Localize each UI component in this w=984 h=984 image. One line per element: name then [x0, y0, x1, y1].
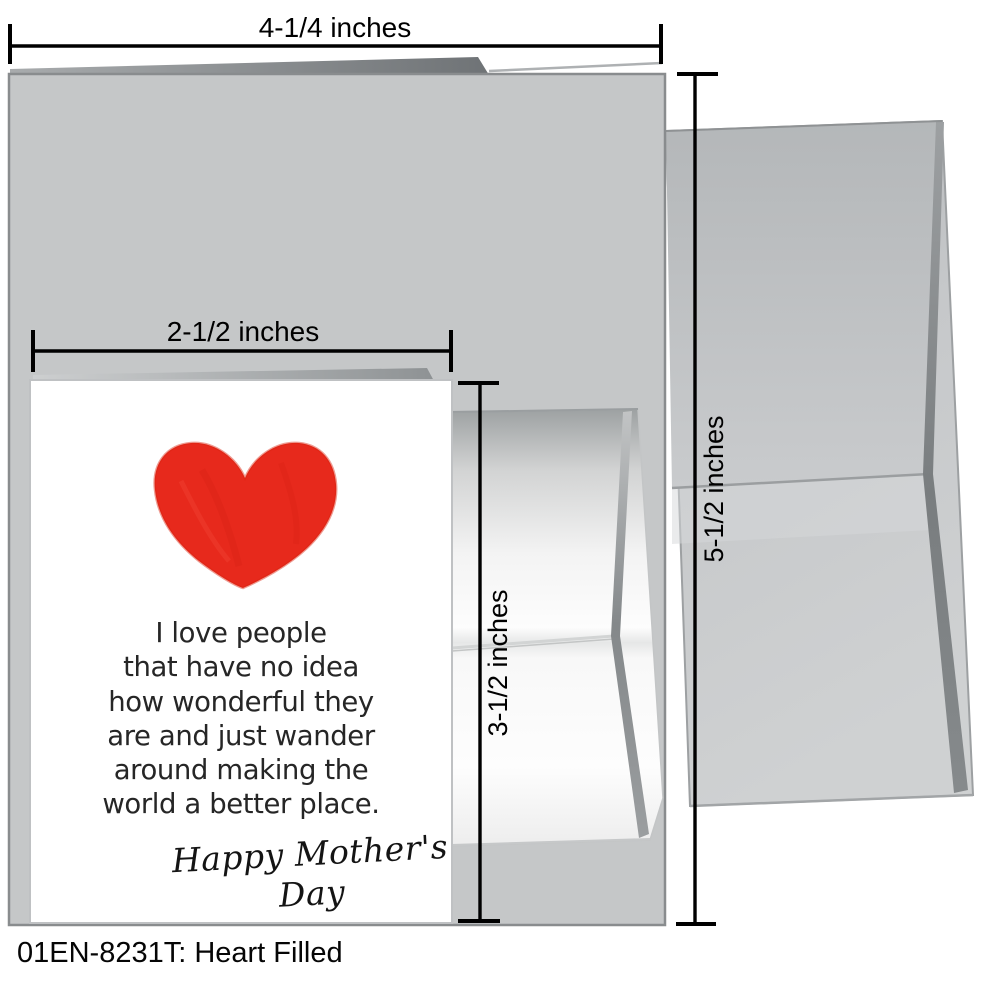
card-back-edge [489, 63, 662, 71]
card-message-line: how wonderful they [30, 685, 452, 719]
card-signature: Happy Mother's Day [148, 826, 474, 923]
product-caption: 01EN-8231T: Heart Filled [17, 936, 343, 970]
dimension-label-mini-card-width: 2-1/2 inches [93, 317, 393, 347]
card-message-line: are and just wander [30, 719, 452, 753]
card-message: I love people that have no idea how wond… [30, 616, 452, 822]
card-message-line: around making the [30, 753, 452, 787]
dimension-label-envelope-height: 5-1/2 inches [700, 409, 728, 569]
product-mockup-scene: 4-1/4 inches 2-1/2 inches 3-1/2 inches 5… [0, 0, 984, 984]
card-message-line: world a better place. [30, 787, 452, 821]
card-message-line: I love people [30, 616, 452, 650]
card-message-line: that have no idea [30, 650, 452, 684]
mockup-artwork [0, 0, 984, 984]
dimension-label-mini-card-height: 3-1/2 inches [484, 583, 512, 743]
card-back-fold [10, 57, 489, 75]
dimension-label-card-width: 4-1/4 inches [185, 13, 485, 43]
